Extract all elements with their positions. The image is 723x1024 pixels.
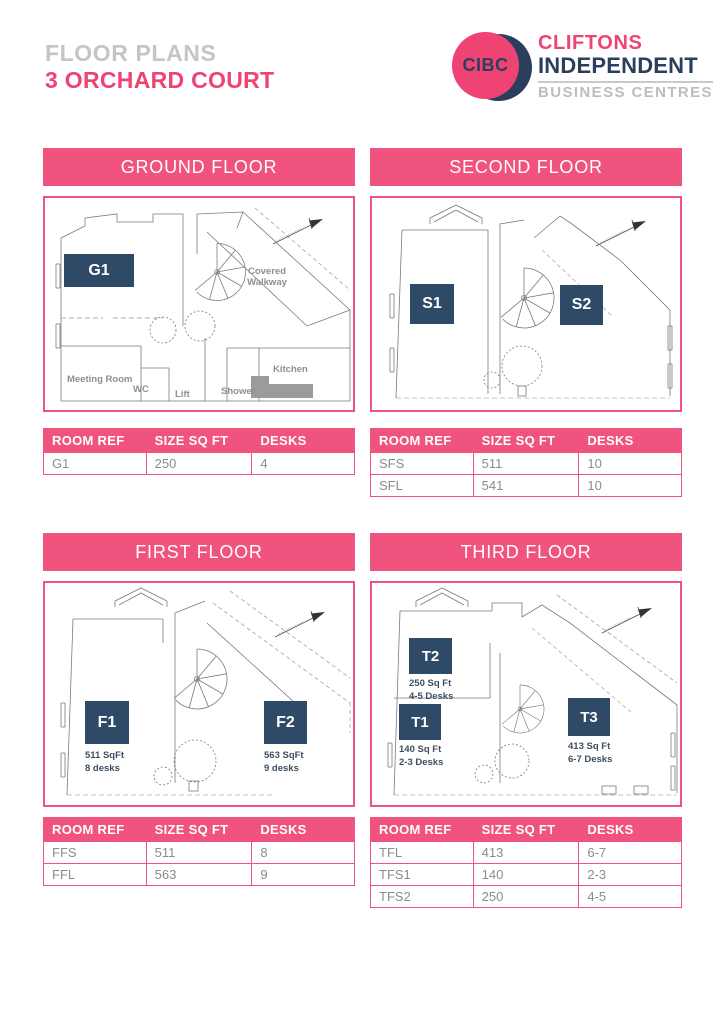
col-room-ref: ROOM REF [44,429,147,453]
cell-size: 563 [146,864,252,886]
label-wc: WC [133,384,149,395]
room-label-g1: G1 [64,254,134,287]
col-desks: DESKS [252,818,355,842]
label-kitchen: Kitchen [273,364,308,375]
cell-size: 541 [473,475,579,497]
page-title: 3 ORCHARD COURT [45,67,274,94]
room-caption-t3: 413 Sq Ft 6-7 Desks [568,740,612,767]
badge-text: CIBC [463,55,509,76]
cell-room-ref: TFS2 [371,886,474,908]
logo-name-top: CLIFTONS [538,33,713,54]
page-title-block: FLOOR PLANS 3 ORCHARD COURT [45,40,274,94]
room-caption-t2: 250 Sq Ft 4-5 Desks [409,677,453,704]
cell-room-ref: G1 [44,453,147,475]
room-size: 250 Sq Ft [409,677,453,690]
second-floor-plan: S1 S2 [370,196,682,412]
section-first-floor: FIRST FLOOR [43,533,355,886]
third-floor-banner: THIRD FLOOR [370,533,682,571]
cell-room-ref: FFS [44,842,147,864]
company-logo: CIBC CLIFTONS INDEPENDENT BUSINESS CENTR… [452,32,713,102]
cell-size: 511 [473,453,579,475]
label-covered-walkway: Covered Walkway [231,266,303,288]
room-label-t1: T1 [399,704,441,740]
page-subtitle: FLOOR PLANS [45,40,274,67]
table-row: TFS2 250 4-5 [371,886,682,908]
third-floor-plan: T2 250 Sq Ft 4-5 Desks T1 140 Sq Ft 2-3 … [370,581,682,807]
logo-name-bottom: INDEPENDENT [538,54,713,78]
third-floor-table: ROOM REF SIZE SQ FT DESKS TFL 413 6-7 TF… [370,817,682,908]
cell-desks: 4-5 [579,886,682,908]
cell-size: 140 [473,864,579,886]
room-label-f2: F2 [264,701,307,744]
col-desks: DESKS [579,818,682,842]
label-lift: Lift [175,389,190,400]
room-desks: 4-5 Desks [409,690,453,703]
cell-desks: 10 [579,453,682,475]
table-row: FFL 563 9 [44,864,355,886]
room-caption-f1: 511 SqFt 8 desks [85,749,124,776]
room-size: 140 Sq Ft [399,743,443,756]
logo-tagline: BUSINESS CENTRES [538,85,713,102]
cibc-badge-icon: CIBC [452,32,532,102]
table-row: SFL 541 10 [371,475,682,497]
north-arrow-icon [596,601,666,641]
ground-floor-table: ROOM REF SIZE SQ FT DESKS G1 250 4 [43,428,355,475]
cell-desks: 9 [252,864,355,886]
first-floor-plan: F1 511 SqFt 8 desks F2 563 SqFt 9 desks [43,581,355,807]
room-desks: 9 desks [264,762,304,775]
cell-size: 511 [146,842,252,864]
cell-desks: 4 [252,453,355,475]
logo-wordmark: CLIFTONS INDEPENDENT BUSINESS CENTRES [538,33,713,101]
first-floor-table: ROOM REF SIZE SQ FT DESKS FFS 511 8 FFL … [43,817,355,886]
room-caption-f2: 563 SqFt 9 desks [264,749,304,776]
cell-size: 250 [473,886,579,908]
second-floor-banner: SECOND FLOOR [370,148,682,186]
section-second-floor: SECOND FLOOR [370,148,682,497]
section-ground-floor: GROUND FLOOR [43,148,355,475]
col-room-ref: ROOM REF [371,818,474,842]
col-desks: DESKS [579,429,682,453]
room-desks: 6-7 Desks [568,753,612,766]
room-label-t2: T2 [409,638,452,674]
table-row: TFS1 140 2-3 [371,864,682,886]
ground-floor-plan: G1 Covered Walkway Meeting Room WC Lift … [43,196,355,412]
table-row: FFS 511 8 [44,842,355,864]
cell-desks: 6-7 [579,842,682,864]
room-caption-t1: 140 Sq Ft 2-3 Desks [399,743,443,770]
table-row: SFS 511 10 [371,453,682,475]
room-desks: 8 desks [85,762,124,775]
cell-size: 250 [146,453,252,475]
room-label-f1: F1 [85,701,129,744]
table-row: TFL 413 6-7 [371,842,682,864]
north-arrow-icon [590,214,660,254]
cell-size: 413 [473,842,579,864]
label-meeting-room: Meeting Room [67,374,132,385]
first-floor-banner: FIRST FLOOR [43,533,355,571]
cell-room-ref: TFS1 [371,864,474,886]
ground-floor-banner: GROUND FLOOR [43,148,355,186]
room-size: 413 Sq Ft [568,740,612,753]
room-label-s2: S2 [560,285,603,325]
cell-room-ref: SFS [371,453,474,475]
cell-room-ref: SFL [371,475,474,497]
cell-room-ref: TFL [371,842,474,864]
col-size: SIZE SQ FT [473,429,579,453]
badge-front-circle-icon: CIBC [452,32,519,99]
col-desks: DESKS [252,429,355,453]
cell-room-ref: FFL [44,864,147,886]
col-room-ref: ROOM REF [44,818,147,842]
north-arrow-icon [269,605,339,645]
page: FLOOR PLANS 3 ORCHARD COURT CIBC CLIFTON… [0,0,723,1024]
room-size: 563 SqFt [264,749,304,762]
section-third-floor: THIRD FLOOR [370,533,682,908]
col-room-ref: ROOM REF [371,429,474,453]
cell-desks: 8 [252,842,355,864]
col-size: SIZE SQ FT [473,818,579,842]
label-shower: Shower [221,386,255,397]
col-size: SIZE SQ FT [146,818,252,842]
second-floor-table: ROOM REF SIZE SQ FT DESKS SFS 511 10 SFL… [370,428,682,497]
logo-divider [538,81,713,83]
room-size: 511 SqFt [85,749,124,762]
col-size: SIZE SQ FT [146,429,252,453]
room-desks: 2-3 Desks [399,756,443,769]
cell-desks: 2-3 [579,864,682,886]
room-label-t3: T3 [568,698,610,736]
room-label-s1: S1 [410,284,454,324]
north-arrow-icon [267,212,337,252]
cell-desks: 10 [579,475,682,497]
table-row: G1 250 4 [44,453,355,475]
